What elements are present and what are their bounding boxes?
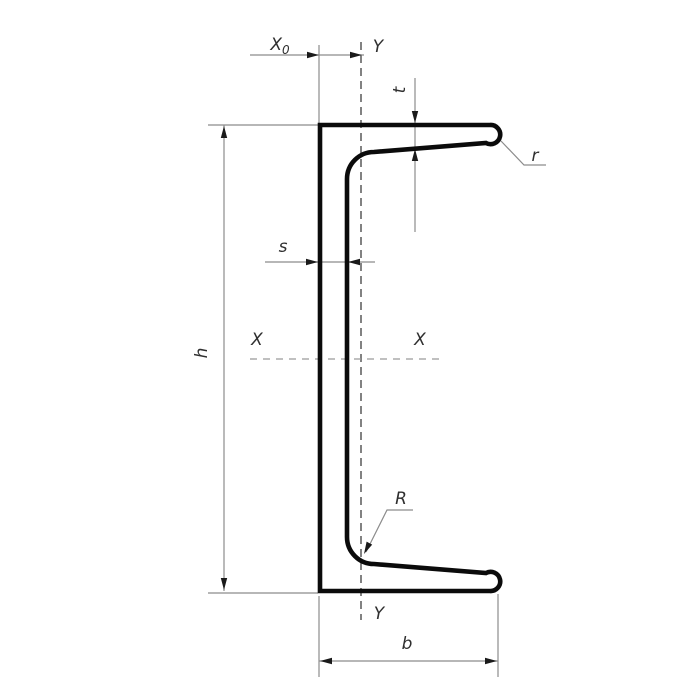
s-label: s — [279, 237, 288, 257]
y-axis-top-label: Y — [373, 37, 385, 57]
r-leader-line — [501, 141, 546, 165]
b-arrow-left — [320, 658, 332, 664]
x0-label: X0 — [269, 35, 290, 57]
x0-arrow-web-face — [307, 52, 319, 58]
h-arrow-up — [221, 126, 227, 138]
h-arrow-down — [221, 578, 227, 590]
x-axis-right-label: X — [413, 330, 426, 350]
x-axis-left-label: X — [250, 330, 263, 350]
R-label: R — [395, 489, 407, 509]
s-arrow-left — [348, 259, 360, 265]
b-arrow-right — [485, 658, 497, 664]
R-leader-line — [366, 510, 413, 552]
r-label: r — [532, 146, 540, 166]
b-label: b — [402, 634, 413, 654]
t-label: t — [390, 85, 410, 93]
x0-label-subscript: 0 — [282, 43, 290, 57]
x0-arrow-y-axis — [350, 52, 362, 58]
y-axis-bottom-label: Y — [374, 604, 386, 624]
drawing-canvas: X0 Y t r s h X X R Y b — [0, 0, 700, 700]
t-arrow-down — [412, 111, 418, 123]
channel-section-diagram: X0 Y t r s h X X R Y b — [0, 0, 700, 700]
channel-profile — [320, 125, 500, 591]
s-arrow-right — [306, 259, 318, 265]
x0-label-main: X — [269, 35, 282, 55]
R-leader-arrow — [364, 542, 372, 554]
h-label: h — [192, 348, 212, 359]
dimension-lines — [208, 45, 546, 677]
